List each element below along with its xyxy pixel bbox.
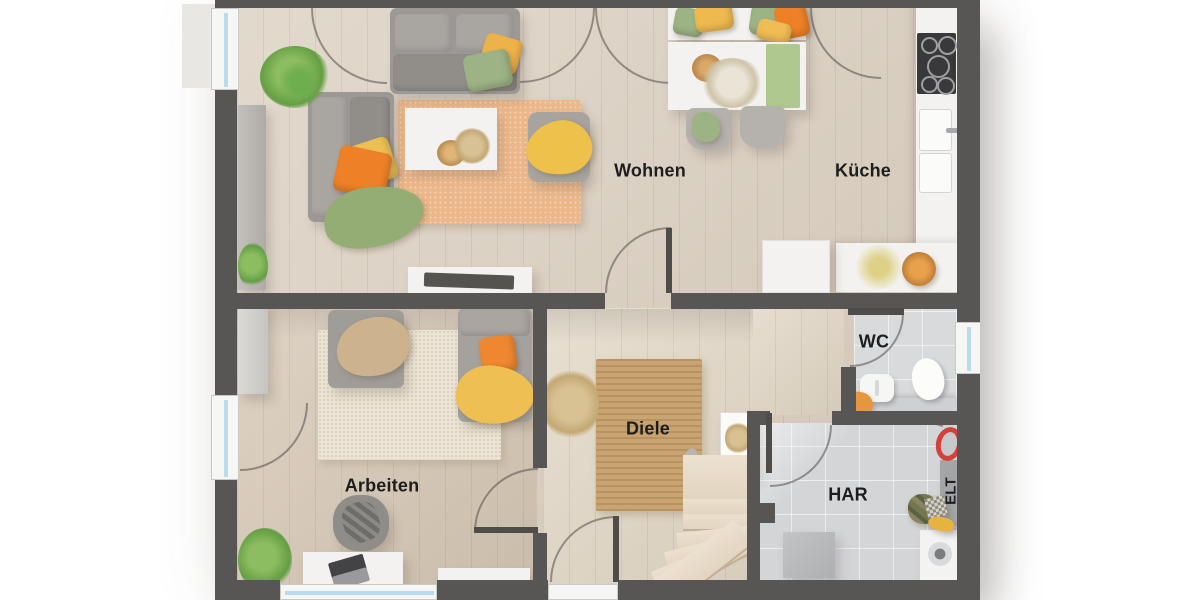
door-leaf-living-hall (666, 228, 672, 293)
window-living-left (211, 8, 239, 90)
wall-bottom-1 (215, 580, 280, 600)
window-glass (967, 327, 971, 371)
room-label-har: HAR (828, 485, 868, 506)
room-label-wc: WC (859, 332, 889, 353)
wall-shadow-diele (543, 309, 753, 343)
flower-bouquet (700, 58, 764, 108)
palm-plant-frond (278, 62, 322, 102)
dining-chair (740, 106, 786, 148)
wall-bottom-2 (437, 580, 548, 600)
wall-wc-har-2 (832, 411, 958, 425)
wall-diele-vert-lower (533, 533, 547, 582)
counter-flowers (850, 244, 908, 290)
stair-landing (683, 455, 755, 501)
wall-har-pier (757, 503, 775, 523)
dining-table (668, 42, 806, 110)
wall-bottom-3 (618, 580, 980, 600)
cooktop (917, 33, 956, 94)
burner (921, 76, 938, 93)
wall-top (215, 0, 980, 8)
sofa-back-cushion (395, 14, 452, 52)
wall-mid-left (237, 293, 605, 309)
corridor-floor (749, 308, 844, 415)
door-leaf-har (766, 413, 772, 473)
window-wc-right (955, 322, 981, 374)
sink-basin (919, 153, 952, 193)
washing-machine (920, 530, 958, 580)
burner (938, 36, 957, 55)
window-glass (224, 400, 228, 477)
room-label-wohnen: Wohnen (614, 161, 686, 182)
daybed-headrest (460, 310, 530, 336)
wall-mid-right (671, 293, 958, 309)
room-label-arbeiten: Arbeiten (345, 476, 420, 497)
room-label-elt: ELT (943, 477, 960, 505)
coffee-table (405, 108, 497, 170)
wall-right-upper (957, 0, 980, 322)
wall-left-mid (215, 90, 237, 395)
window-office-bottom (280, 584, 437, 600)
burner (927, 55, 950, 78)
wall-right-lower (957, 374, 980, 600)
pampas-plant (543, 366, 599, 442)
burner (921, 37, 938, 54)
sideboard-plant (238, 243, 268, 289)
window-glass (224, 13, 228, 87)
window-office-left (211, 395, 239, 480)
floorplan-canvas: Wohnen Küche WC Diele Arbeiten HAR ELT (0, 0, 1200, 600)
fruit-bowl (902, 252, 936, 286)
room-label-diele: Diele (626, 419, 670, 440)
chair-cloth-green (692, 112, 720, 142)
chair-cushion-pattern (338, 497, 385, 546)
tv (424, 272, 514, 289)
staircase (605, 455, 755, 582)
wall-diele-vert-upper (533, 309, 547, 468)
door-leaf-office (474, 527, 538, 533)
window-glass (285, 591, 434, 595)
door-leaf-wc (848, 308, 904, 315)
room-label-kueche: Küche (835, 161, 891, 182)
washer-door (928, 542, 952, 566)
dining-chair (686, 108, 732, 150)
wall-har-left (747, 411, 760, 582)
roll-slot (875, 380, 879, 396)
entrance-door-sill (548, 584, 618, 600)
table-runner (766, 44, 800, 108)
table-plant (453, 128, 491, 164)
door-leaf-entrance (613, 516, 619, 582)
storage-box (783, 532, 835, 578)
tv-board (408, 267, 532, 293)
office-chair (333, 495, 389, 551)
burner (937, 77, 955, 95)
wardrobe (238, 302, 268, 394)
wall-wc-left (841, 367, 856, 415)
chest-freezer (762, 240, 830, 293)
